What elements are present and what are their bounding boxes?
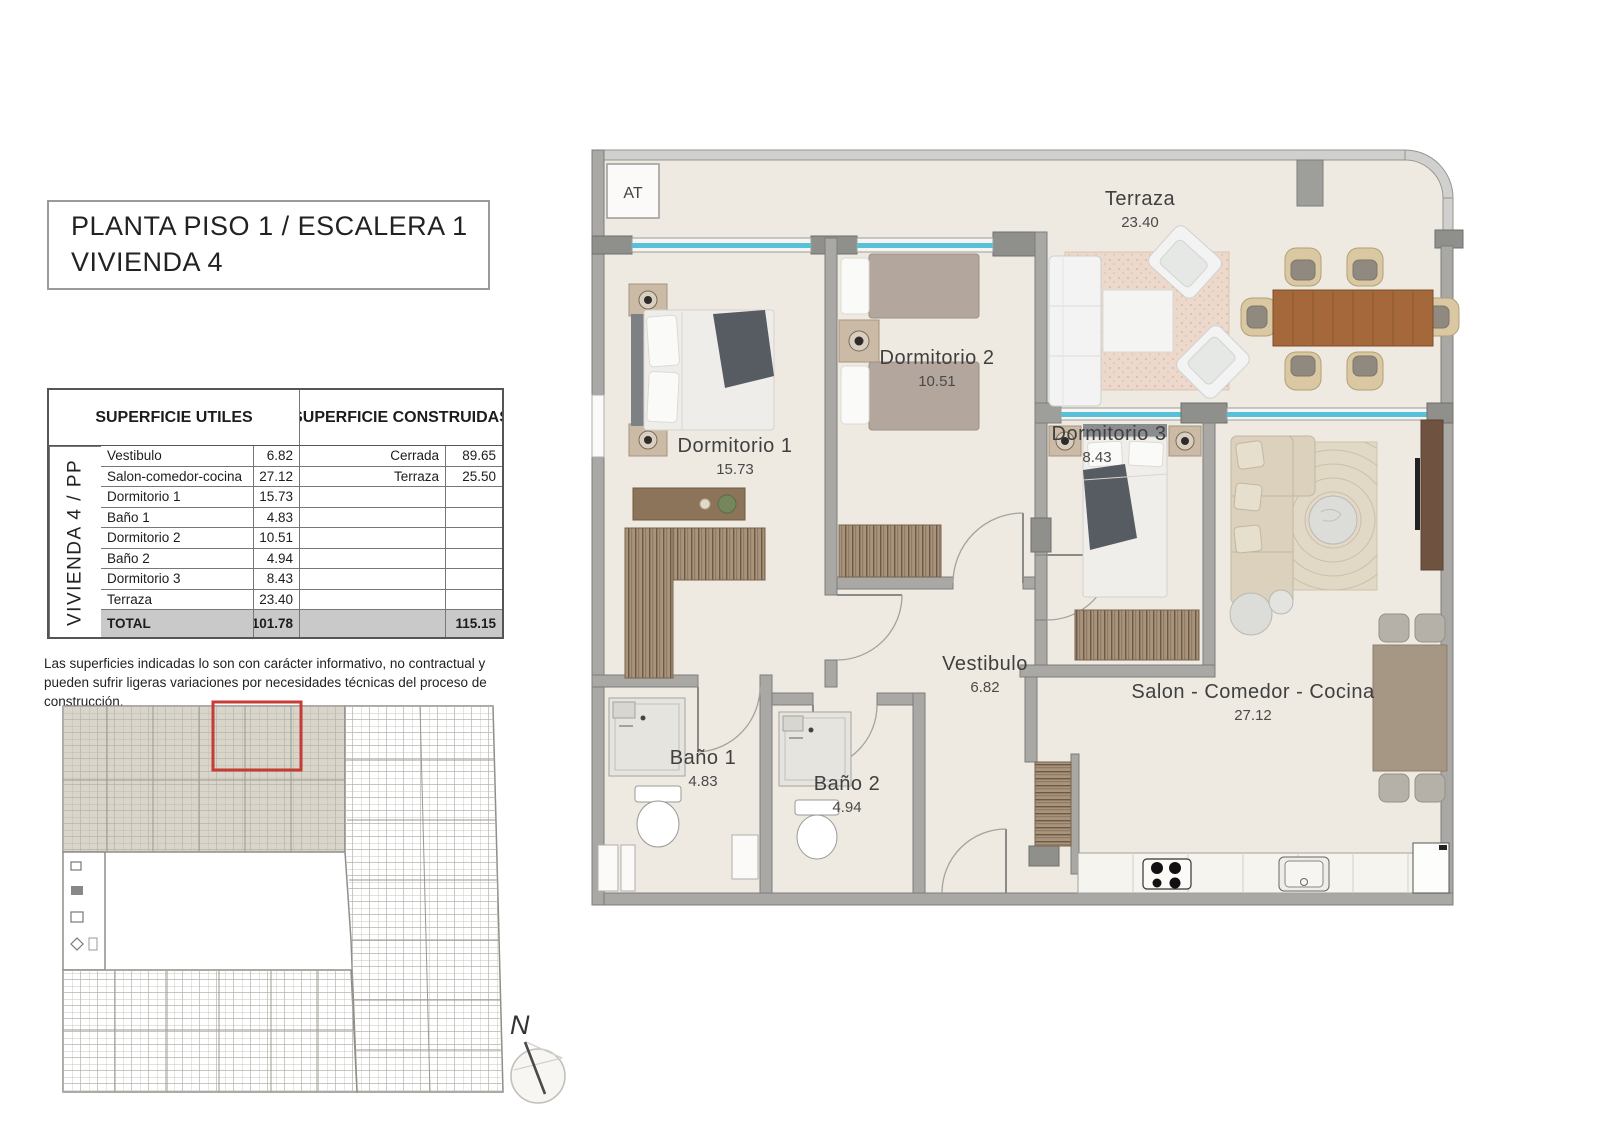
- surface-table: SUPERFICIE UTILES SUPERFICIE CONSTRUIDAS…: [47, 388, 504, 639]
- label-dormitorio2: Dormitorio 2: [880, 347, 995, 369]
- window-salon: [1227, 408, 1427, 420]
- table-row-name: Salon-comedor-cocina: [101, 467, 254, 488]
- page-root: PLANTA PISO 1 / ESCALERA 1 VIVIENDA 4 SU…: [0, 0, 1600, 1131]
- table-built-name: Cerrada: [300, 446, 446, 467]
- table-built-name: Terraza: [300, 467, 446, 488]
- terrace-pier: [1297, 160, 1323, 206]
- compass-north-label: N: [510, 1010, 530, 1040]
- siteplan-bottom-block: [63, 970, 357, 1092]
- label-terraza: Terraza: [1105, 188, 1176, 210]
- table-row-value: 4.83: [254, 508, 300, 529]
- label-dormitorio3: Dormitorio 3: [1052, 423, 1167, 445]
- table-total-useful: 101.78: [254, 610, 300, 637]
- bed-single: [841, 362, 979, 430]
- table-row-value: 27.12: [254, 467, 300, 488]
- dresser: [633, 488, 745, 520]
- plan-title-line2: VIVIENDA 4: [71, 245, 488, 281]
- fridge: [1413, 843, 1449, 893]
- label-bano1: Baño 1: [670, 747, 736, 769]
- window-dormitorio-2: [857, 238, 993, 252]
- table-row-name: Dormitorio 2: [101, 528, 254, 549]
- area-salon: 27.12: [1234, 707, 1272, 724]
- table-row-name: Baño 1: [101, 508, 254, 529]
- area-bano1: 4.83: [688, 773, 717, 790]
- siteplan-top-block: [63, 706, 345, 852]
- table-row-value: 23.40: [254, 590, 300, 611]
- table-row-value: 15.73: [254, 487, 300, 508]
- table-total-built: 115.15: [446, 610, 502, 637]
- table-row-value: 6.82: [254, 446, 300, 467]
- plan-title-line1: PLANTA PISO 1 / ESCALERA 1: [71, 209, 488, 245]
- pantry-cabinet: [1035, 762, 1071, 846]
- label-dormitorio1: Dormitorio 1: [678, 435, 793, 457]
- table-header-utiles: SUPERFICIE UTILES: [49, 390, 300, 446]
- table-built-value: 25.50: [446, 467, 502, 488]
- site-plan: [55, 700, 505, 1100]
- coffee-table: [1309, 496, 1357, 544]
- table-vertical-label: VIVIENDA 4 / PP: [49, 446, 101, 637]
- side-table: [1230, 593, 1272, 635]
- area-bano2: 4.94: [832, 799, 861, 816]
- area-dormitorio2: 10.51: [918, 373, 956, 390]
- table-row-value: 4.94: [254, 549, 300, 570]
- table-total-label: TOTAL: [101, 610, 254, 637]
- window-dormitorio-3: [1061, 408, 1181, 420]
- toilet: [635, 786, 681, 847]
- at-label: AT: [623, 185, 642, 202]
- compass-rose: N: [488, 1008, 584, 1124]
- floor-plan: AT: [585, 140, 1465, 910]
- table-built-value: 89.65: [446, 446, 502, 467]
- table-row-name: Dormitorio 3: [101, 569, 254, 590]
- at-closet: AT: [607, 164, 659, 218]
- table-row-value: 8.43: [254, 569, 300, 590]
- wardrobe: [1075, 610, 1199, 660]
- bed-double: [631, 310, 774, 430]
- table-row-name: Dormitorio 1: [101, 487, 254, 508]
- side-table: [1269, 590, 1293, 614]
- outdoor-coffee-table: [1103, 290, 1173, 352]
- table-row-name: Vestibulo: [101, 446, 254, 467]
- table-row-name: Baño 2: [101, 549, 254, 570]
- label-bano2: Baño 2: [814, 773, 880, 795]
- siteplan-left-wing: [63, 852, 105, 970]
- area-dormitorio3: 8.43: [1082, 449, 1111, 466]
- wardrobe: [839, 525, 941, 577]
- label-salon: Salon - Comedor - Cocina: [1131, 681, 1375, 703]
- window-dormitorio-1: [632, 238, 811, 252]
- area-dormitorio1: 15.73: [716, 461, 754, 478]
- label-vestibulo: Vestibulo: [942, 653, 1028, 675]
- table-row-value: 10.51: [254, 528, 300, 549]
- area-vestibulo: 6.82: [970, 679, 999, 696]
- area-terraza: 23.40: [1121, 214, 1159, 231]
- siteplan-right-wing: [345, 706, 503, 1092]
- title-box: PLANTA PISO 1 / ESCALERA 1 VIVIENDA 4: [47, 200, 490, 290]
- table-row-name: Terraza: [101, 590, 254, 611]
- table-header-construidas: SUPERFICIE CONSTRUIDAS: [300, 390, 502, 446]
- bed-single: [841, 254, 979, 318]
- outdoor-sofa: [1049, 256, 1101, 406]
- cooktop: [1143, 859, 1191, 889]
- kitchen-sink: [1279, 857, 1329, 891]
